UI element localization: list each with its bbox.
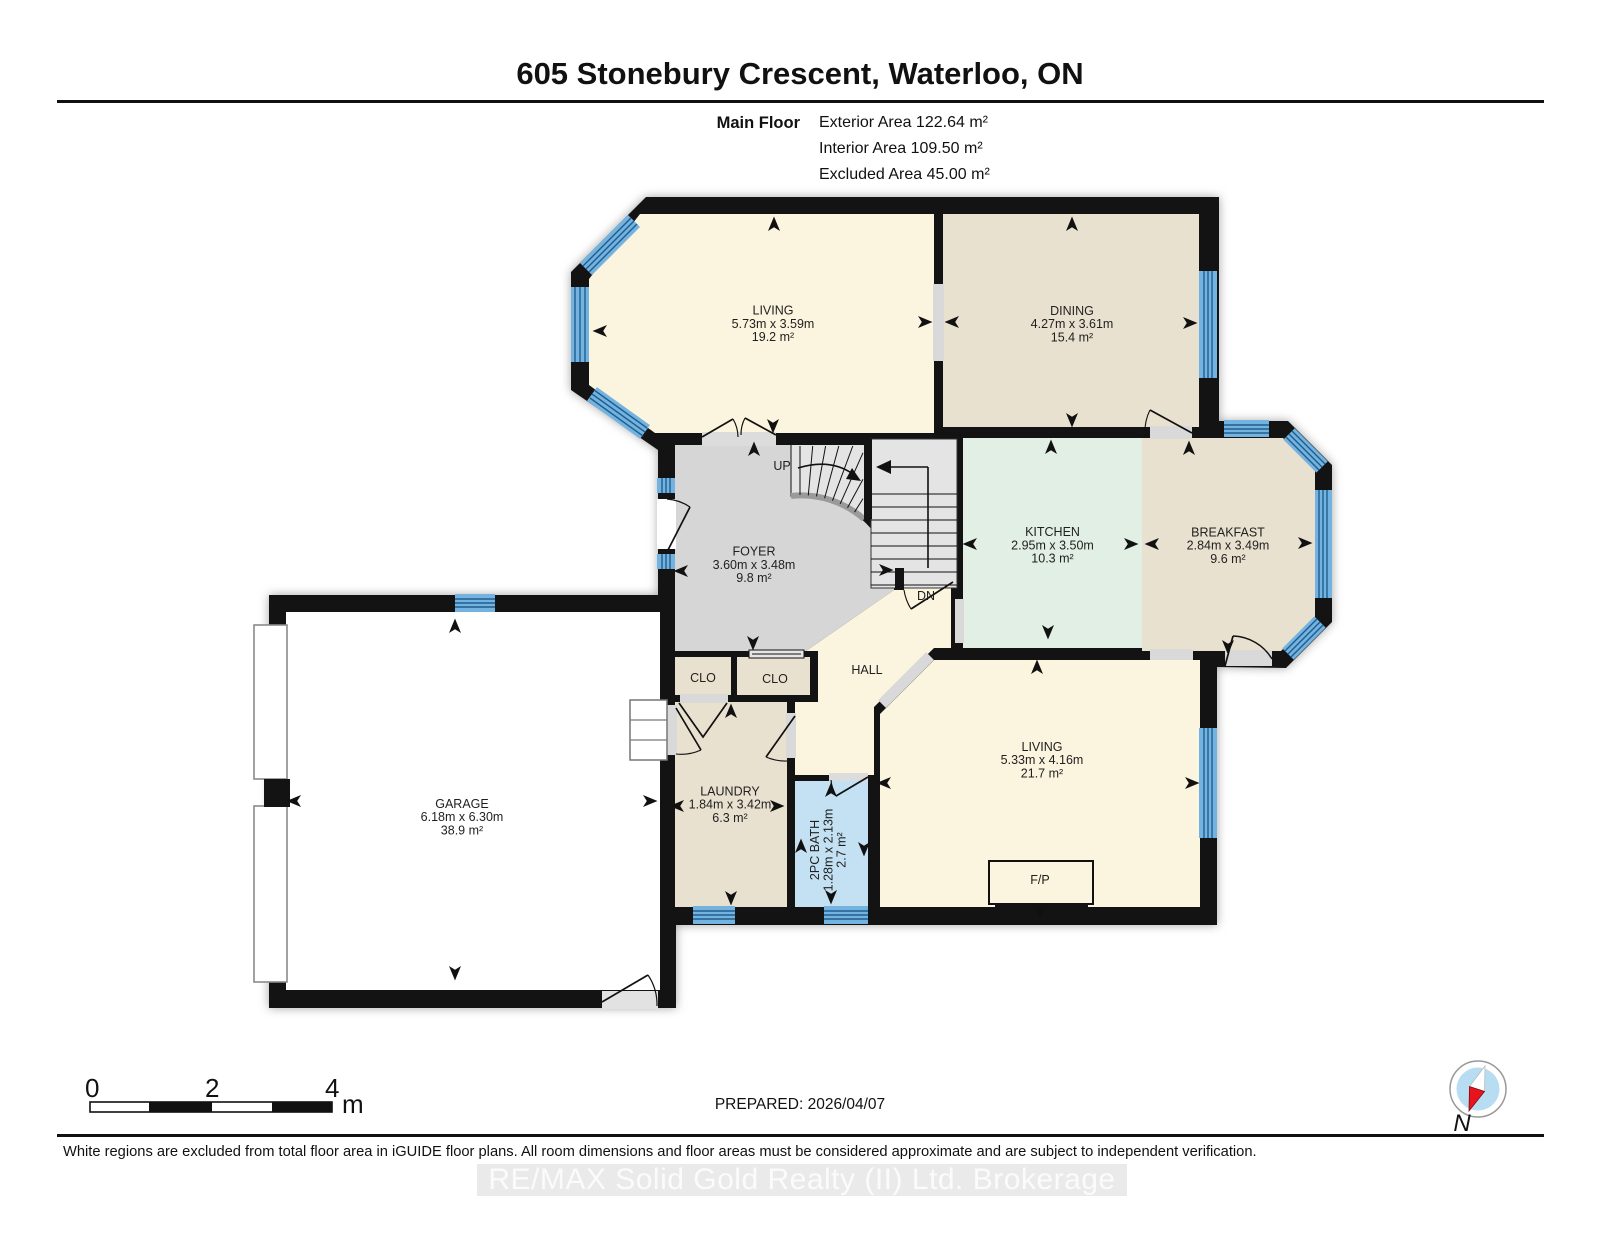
svg-text:BREAKFAST: BREAKFAST: [1191, 526, 1265, 540]
svg-text:DN: DN: [917, 589, 935, 603]
svg-text:FOYER: FOYER: [732, 545, 775, 559]
svg-text:CLO: CLO: [690, 671, 716, 685]
svg-text:5.73m x 3.59m: 5.73m x 3.59m: [732, 317, 815, 331]
svg-text:F/P: F/P: [1030, 873, 1049, 887]
svg-text:LAUNDRY: LAUNDRY: [700, 785, 760, 799]
svg-text:4.27m x 3.61m: 4.27m x 3.61m: [1031, 317, 1114, 331]
svg-text:1.84m x 3.42m: 1.84m x 3.42m: [689, 798, 772, 812]
svg-text:9.6 m²: 9.6 m²: [1210, 552, 1245, 566]
svg-text:6.18m x 6.30m: 6.18m x 6.30m: [421, 810, 504, 824]
svg-text:38.9 m²: 38.9 m²: [441, 823, 483, 837]
svg-text:10.3 m²: 10.3 m²: [1031, 552, 1073, 566]
svg-text:1.28m x 2.13m: 1.28m x 2.13m: [821, 809, 835, 892]
svg-text:15.4 m²: 15.4 m²: [1051, 330, 1093, 344]
svg-text:21.7 m²: 21.7 m²: [1021, 766, 1063, 780]
svg-text:GARAGE: GARAGE: [435, 797, 489, 811]
svg-text:N: N: [1453, 1110, 1471, 1137]
svg-text:CLO: CLO: [762, 672, 788, 686]
svg-text:19.2 m²: 19.2 m²: [752, 330, 794, 344]
svg-text:HALL: HALL: [851, 663, 882, 677]
svg-text:LIVING: LIVING: [1022, 740, 1063, 754]
svg-text:2.95m x 3.50m: 2.95m x 3.50m: [1011, 538, 1094, 552]
svg-text:2.7 m²: 2.7 m²: [835, 832, 849, 867]
svg-text:3.60m x 3.48m: 3.60m x 3.48m: [713, 558, 796, 572]
svg-text:UP: UP: [773, 459, 790, 473]
svg-text:2PC BATH: 2PC BATH: [808, 820, 822, 880]
svg-text:9.8 m²: 9.8 m²: [736, 571, 771, 585]
svg-text:6.3 m²: 6.3 m²: [712, 811, 747, 825]
svg-text:5.33m x 4.16m: 5.33m x 4.16m: [1001, 753, 1084, 767]
svg-text:LIVING: LIVING: [753, 304, 794, 318]
svg-text:2.84m x 3.49m: 2.84m x 3.49m: [1187, 539, 1270, 553]
svg-text:DINING: DINING: [1050, 304, 1094, 318]
svg-text:KITCHEN: KITCHEN: [1025, 525, 1080, 539]
